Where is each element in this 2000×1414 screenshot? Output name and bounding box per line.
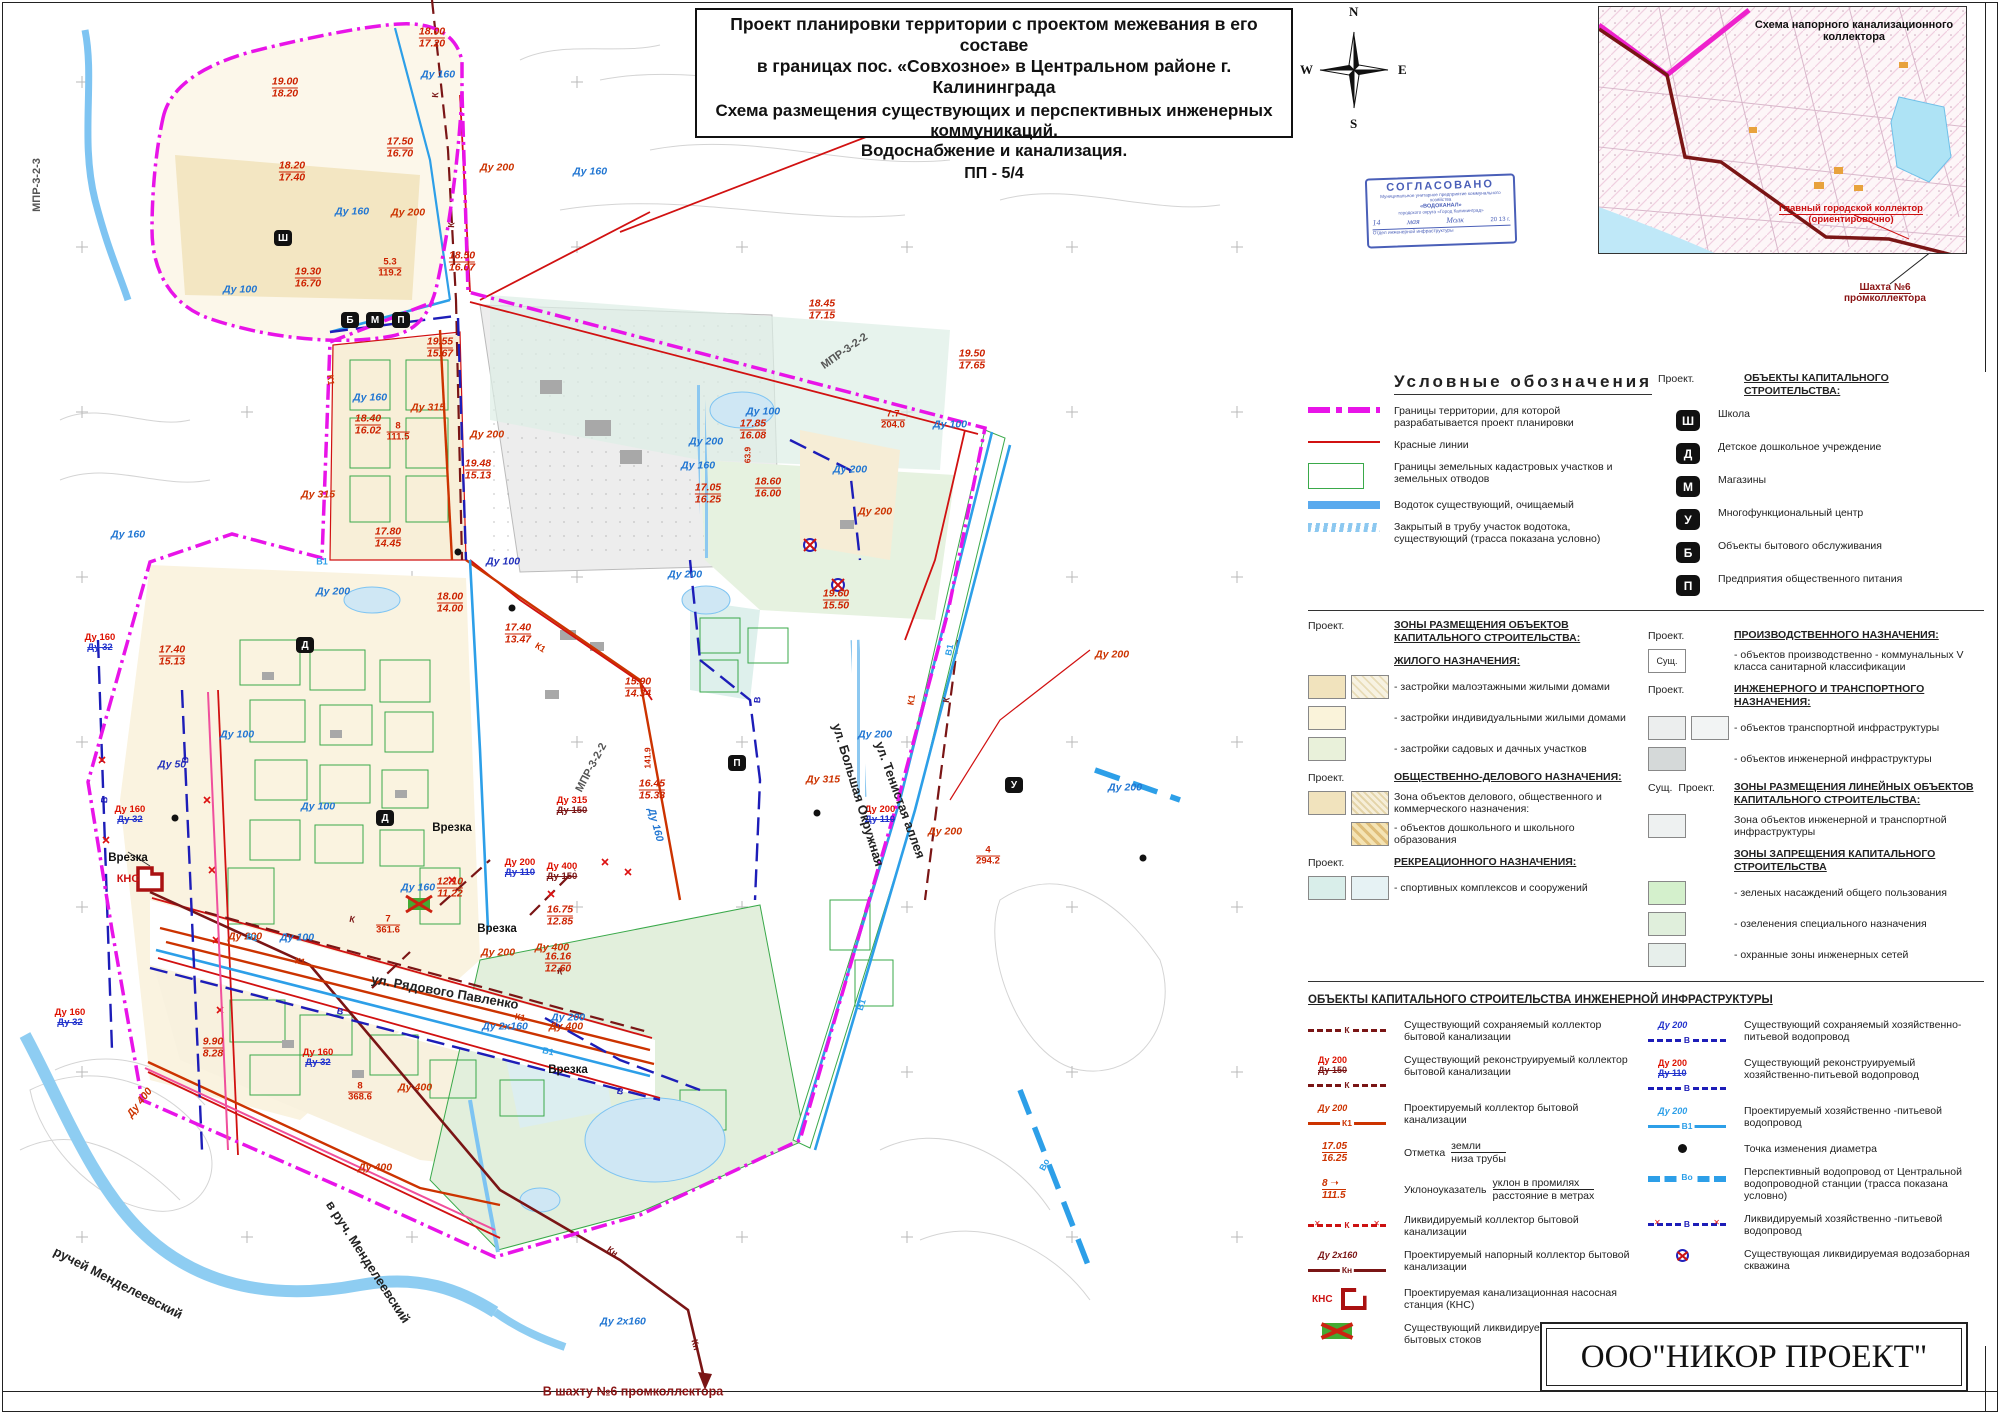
infra-item-label: Отметказемлиниза трубы: [1404, 1140, 1636, 1165]
legend-swatch: [1308, 439, 1394, 443]
legend-item-label: Школа: [1718, 408, 1968, 420]
zone-group-heading: ЖИЛОГО НАЗНАЧЕНИЯ:: [1308, 655, 1648, 668]
legend-item-label: Детское дошкольное учреждение: [1718, 441, 1968, 453]
infra-symbol: Ду 200Ду 150К: [1308, 1054, 1404, 1091]
zone-heading: ЗОНЫ ЗАПРЕЩЕНИЯ КАПИТАЛЬНОГО СТРОИТЕЛЬСТ…: [1734, 848, 1980, 874]
zone-swatches: [1308, 675, 1394, 699]
infra-item: Ду 200К1Проектируемый коллектор бытовой …: [1308, 1102, 1648, 1129]
zone-group-heading: ЗОНЫ ЗАПРЕЩЕНИЯ КАПИТАЛЬНОГО СТРОИТЕЛЬСТ…: [1648, 848, 1984, 874]
legend-swatch: [1308, 461, 1394, 489]
legend-item: УМногофункциональный центр: [1658, 507, 1984, 530]
infra-symbol: Ду 200Ду 110В: [1648, 1057, 1744, 1094]
infra-item: Ду 200В1Проектируемый хозяйственно -пить…: [1648, 1105, 1984, 1132]
infra-symbol: [1648, 1248, 1744, 1262]
infra-item-label: Существующий реконструируемый хозяйствен…: [1744, 1057, 1976, 1081]
infra-item-label: Проектируемый хозяйственно -питьевой вод…: [1744, 1105, 1976, 1129]
legend-item: ШШкола: [1658, 408, 1984, 431]
divider: [1308, 981, 1984, 982]
zone-item: - спортивных комплексов и сооружений: [1308, 876, 1648, 900]
legend-capital-objects-title: ОБЪЕКТЫ КАПИТАЛЬНОГО СТРОИТЕЛЬСТВА:: [1744, 372, 1984, 398]
zone-swatches: [1648, 716, 1734, 740]
infra-item: ✕✕КЛиквидируемый коллектор бытовой канал…: [1308, 1214, 1648, 1238]
stamp-day: 14: [1372, 218, 1380, 227]
compass-n: N: [1349, 4, 1358, 20]
zone-item-label: - охранные зоны инженерных сетей: [1734, 949, 1980, 961]
infra-item-label: Существующая ликвидируемая водозаборная …: [1744, 1248, 1976, 1272]
infra-symbol: 17.0516.25: [1308, 1140, 1404, 1166]
legend-item-label: Красные линии: [1394, 439, 1634, 451]
infra-symbol: Во: [1648, 1166, 1744, 1183]
infra-symbol: КНС: [1308, 1287, 1404, 1310]
zone-prefix: Проект.: [1648, 683, 1734, 696]
zone-swatches: [1648, 881, 1734, 905]
legend-item: Закрытый в трубу участок водотока, сущес…: [1308, 521, 1658, 545]
zones-title: ЗОНЫ РАЗМЕЩЕНИЯ ОБЪЕКТОВ КАПИТАЛЬНОГО СТ…: [1394, 619, 1640, 645]
zone-item: Сущ.- объектов производственно - коммуна…: [1648, 649, 1984, 673]
inset-title: Схема напорного канализационного коллект…: [1749, 19, 1959, 43]
zones-left-list: ЖИЛОГО НАЗНАЧЕНИЯ:- застройки малоэтажны…: [1308, 655, 1648, 900]
legend-item: Красные линии: [1308, 439, 1658, 451]
zone-heading: РЕКРЕАЦИОННОГО НАЗНАЧЕНИЯ:: [1394, 856, 1640, 869]
infra-symbol: [1648, 1143, 1744, 1153]
zone-item-label: Зона объектов инженерной и транспортной …: [1734, 814, 1980, 838]
zone-item: Зона объектов делового, общественного и …: [1308, 791, 1648, 815]
zone-swatches: [1308, 737, 1394, 761]
legend-swatch: У: [1658, 507, 1718, 530]
stamp-month: мая: [1407, 217, 1420, 226]
legend-item-label: Объекты бытового обслуживания: [1718, 540, 1968, 552]
zone-item-label: - застройки малоэтажными жилыми домами: [1394, 681, 1640, 693]
zone-group-heading: Проект.ОБЩЕСТВЕННО-ДЕЛОВОГО НАЗНАЧЕНИЯ:: [1308, 771, 1648, 784]
zone-swatch: [1308, 675, 1346, 699]
legend-item: ММагазины: [1658, 474, 1984, 497]
zone-swatch: [1648, 943, 1686, 967]
legend-general-list: Границы территории, для которой разрабат…: [1308, 405, 1658, 545]
plan-sheet: 18.0017.2019.0018.2018.2017.4017.5016.70…: [0, 0, 2000, 1414]
legend-swatch: [1308, 405, 1394, 413]
infra-item-label: Уклоноуказательуклон в промиляхрасстояни…: [1404, 1177, 1636, 1202]
legend-item: Водоток существующий, очищаемый: [1308, 499, 1658, 511]
infra-item-label: Ликвидируемый коллектор бытовой канализа…: [1404, 1214, 1636, 1238]
zones-right-list: Проект.ПРОИЗВОДСТВЕННОГО НАЗНАЧЕНИЯ:Сущ.…: [1648, 629, 1984, 967]
infra-right-list: Ду 200ВСуществующий сохраняемый хозяйств…: [1648, 1019, 1984, 1272]
zone-item-label: - спортивных комплексов и сооружений: [1394, 882, 1640, 894]
legend-swatch: Д: [1658, 441, 1718, 464]
legend-item: ДДетское дошкольное учреждение: [1658, 441, 1984, 464]
infra-item-label: Существующий сохраняемый хозяйственно-пи…: [1744, 1019, 1976, 1043]
infra-symbol: Ду 200К1: [1308, 1102, 1404, 1129]
zone-prefix: Проект.: [1648, 629, 1734, 642]
zone-item: - объектов дошкольного и школьного образ…: [1308, 822, 1648, 846]
zone-prefix: [1648, 848, 1734, 849]
services-icon: Б: [1676, 542, 1700, 563]
stamp-year: 20 13 г.: [1490, 217, 1510, 224]
zone-swatch: [1308, 876, 1346, 900]
zone-item: - застройки малоэтажными жилыми домами: [1308, 675, 1648, 699]
sush-box: Сущ.: [1648, 649, 1686, 673]
infra-symbol: ✕✕К: [1308, 1214, 1404, 1231]
zone-swatches: [1308, 791, 1394, 815]
zone-item: - охранные зоны инженерных сетей: [1648, 943, 1984, 967]
sump-symbol: [406, 896, 432, 912]
zones-proekt-label: Проект.: [1308, 619, 1394, 632]
infra-item: КНСПроектируемая канализационная насосна…: [1308, 1287, 1648, 1311]
school-icon: Ш: [1676, 410, 1700, 431]
zone-swatch: [1351, 876, 1389, 900]
zone-item: - озеленения специального назначения: [1648, 912, 1984, 936]
zone-item: - объектов инженерной инфраструктуры: [1648, 747, 1984, 771]
zone-item: - зеленых насаждений общего пользования: [1648, 881, 1984, 905]
zone-swatches: [1308, 876, 1394, 900]
zone-item-label: - объектов транспортной инфраструктуры: [1734, 722, 1980, 734]
legend-title: Условные обозначения: [1394, 372, 1652, 395]
legend-item-label: Многофункциональный центр: [1718, 507, 1968, 519]
infra-symbol: Ду 200В1: [1648, 1105, 1744, 1132]
zone-item-label: Зона объектов делового, общественного и …: [1394, 791, 1640, 815]
title-block: Проект планировки территории с проектом …: [695, 8, 1293, 138]
zone-item-label: - застройки садовых и дачных участков: [1394, 743, 1640, 755]
subtitle-line: коммуникаций.: [697, 121, 1291, 141]
shaft-label: Шахта №6 промколлектора: [1790, 282, 1980, 304]
infra-item: ✕✕ВЛиквидируемый хозяйственно -питьевой …: [1648, 1213, 1984, 1237]
inset-collector-label: Главный городской коллектор (ориентирово…: [1741, 203, 1961, 225]
zone-heading: ЖИЛОГО НАЗНАЧЕНИЯ:: [1394, 655, 1640, 668]
legend-item-label: Магазины: [1718, 474, 1968, 486]
shops-icon: М: [1676, 476, 1700, 497]
compass-s: S: [1350, 116, 1357, 132]
compass-rose: N W E S: [1298, 8, 1410, 130]
infra-symbol: Ду 200В: [1648, 1019, 1744, 1046]
infra-left-list: КСуществующий сохраняемый коллектор быто…: [1308, 1019, 1648, 1346]
infra-item-label: Точка изменения диаметра: [1744, 1143, 1976, 1155]
compass-star: [1298, 8, 1410, 130]
title-line: в границах пос. «Совхозное» в Центрально…: [697, 56, 1291, 98]
infra-item-label: Ликвидируемый хозяйственно -питьевой вод…: [1744, 1213, 1976, 1237]
infra-item: 8 ➝111.5Уклоноуказательуклон в промиляхр…: [1308, 1177, 1648, 1203]
zone-swatch: [1691, 716, 1729, 740]
legend-item-label: Предприятия общественного питания: [1718, 573, 1968, 585]
legend-item-label: Границы территории, для которой разрабат…: [1394, 405, 1634, 429]
multifunctional-center-icon: У: [1676, 509, 1700, 530]
zone-heading: ИНЖЕНЕРНОГО И ТРАНСПОРТНОГО НАЗНАЧЕНИЯ:: [1734, 683, 1980, 709]
infra-item: 17.0516.25Отметказемлиниза трубы: [1308, 1140, 1648, 1166]
legend-swatch: Ш: [1658, 408, 1718, 431]
infra-item: ВоПерспективный водопровод от Центрально…: [1648, 1166, 1984, 1202]
approval-stamp: СОГЛАСОВАНО Муниципальное унитарное пред…: [1365, 173, 1517, 248]
legend-swatch: [1308, 499, 1394, 509]
legend-proekt-label: Проект.: [1658, 372, 1744, 385]
zone-swatch: [1308, 737, 1346, 761]
infra-item: Точка изменения диаметра: [1648, 1143, 1984, 1155]
company-inner-border: [1546, 1328, 1962, 1386]
infra-item: Ду 200ВСуществующий сохраняемый хозяйств…: [1648, 1019, 1984, 1046]
legend-swatch: П: [1658, 573, 1718, 596]
legend-capital-objects-list: ШШколаДДетское дошкольное учреждениеММаг…: [1658, 408, 1984, 596]
infra-item-label: Проектируемый напорный коллектор бытовой…: [1404, 1249, 1636, 1273]
inset-map: Схема напорного канализационного коллект…: [1598, 6, 1967, 254]
stamp-signature: Молк: [1446, 215, 1464, 225]
infra-symbol: Ду 2х160Кн: [1308, 1249, 1404, 1276]
zone-swatches: [1648, 912, 1734, 936]
zone-item-label: - объектов дошкольного и школьного образ…: [1394, 822, 1640, 846]
compass-w: W: [1300, 62, 1313, 78]
company-block: ООО"НИКОР ПРОЕКТ": [1540, 1322, 1968, 1392]
catering-icon: П: [1676, 575, 1700, 596]
legend-swatch: [1308, 521, 1394, 532]
compass-e: E: [1398, 62, 1407, 78]
zone-group-heading: Проект.ИНЖЕНЕРНОГО И ТРАНСПОРТНОГО НАЗНА…: [1648, 683, 1984, 709]
legend-swatch: М: [1658, 474, 1718, 497]
infra-item-label: Существующий сохраняемый коллектор бытов…: [1404, 1019, 1636, 1043]
infra-title: ОБЪЕКТЫ КАПИТАЛЬНОГО СТРОИТЕЛЬСТВА ИНЖЕН…: [1308, 994, 1988, 1006]
zone-swatches: [1308, 706, 1394, 730]
infra-symbol: [1308, 1322, 1404, 1339]
zone-swatches: Сущ.: [1648, 649, 1734, 673]
zone-prefix: [1308, 655, 1394, 656]
zone-item-label: - зеленых насаждений общего пользования: [1734, 887, 1980, 899]
zone-group-heading: Сущ.Проект.ЗОНЫ РАЗМЕЩЕНИЯ ЛИНЕЙНЫХ ОБЪЕ…: [1648, 781, 1984, 807]
zone-item-label: - объектов производственно - коммунальны…: [1734, 649, 1980, 673]
legend-item-label: Водоток существующий, очищаемый: [1394, 499, 1634, 511]
zone-item: - застройки индивидуальными жилыми домам…: [1308, 706, 1648, 730]
zone-swatch: [1648, 747, 1686, 771]
zone-swatches: [1648, 814, 1734, 838]
zone-swatches: [1648, 943, 1734, 967]
zone-swatch: [1648, 716, 1686, 740]
infra-item-label: Существующий реконструируемый коллектор …: [1404, 1054, 1636, 1078]
zone-heading: ПРОИЗВОДСТВЕННОГО НАЗНАЧЕНИЯ:: [1734, 629, 1980, 642]
infra-item: Существующая ликвидируемая водозаборная …: [1648, 1248, 1984, 1272]
title-line: Проект планировки территории с проектом …: [697, 14, 1291, 56]
legend-item-label: Закрытый в трубу участок водотока, сущес…: [1394, 521, 1634, 545]
zone-item-label: - озеленения специального назначения: [1734, 918, 1980, 930]
infra-item-label: Проектируемый коллектор бытовой канализа…: [1404, 1102, 1636, 1126]
legend-item: Границы земельных кадастровых участков и…: [1308, 461, 1658, 489]
infra-item-label: Перспективный водопровод от Центральной …: [1744, 1166, 1976, 1202]
zone-swatch: [1648, 881, 1686, 905]
zone-swatch: [1648, 814, 1686, 838]
infra-item: Ду 200Ду 110ВСуществующий реконструируем…: [1648, 1057, 1984, 1094]
zone-item: Зона объектов инженерной и транспортной …: [1648, 814, 1984, 838]
sheet-number: ПП - 5/4: [697, 165, 1291, 183]
zone-swatch: [1648, 912, 1686, 936]
zone-item-label: - застройки индивидуальными жилыми домам…: [1394, 712, 1640, 724]
infra-item: Ду 200Ду 150КСуществующий реконструируем…: [1308, 1054, 1648, 1091]
zone-group-heading: Проект.РЕКРЕАЦИОННОГО НАЗНАЧЕНИЯ:: [1308, 856, 1648, 869]
legend-item: БОбъекты бытового обслуживания: [1658, 540, 1984, 563]
infra-symbol: К: [1308, 1019, 1404, 1036]
zone-swatch: [1308, 706, 1346, 730]
legend-item: Границы территории, для которой разрабат…: [1308, 405, 1658, 429]
infra-item: Ду 2х160КнПроектируемый напорный коллект…: [1308, 1249, 1648, 1276]
infra-item-label: Проектируемая канализационная насосная с…: [1404, 1287, 1636, 1311]
zone-group-heading: Проект.ПРОИЗВОДСТВЕННОГО НАЗНАЧЕНИЯ:: [1648, 629, 1984, 642]
zone-item-label: - объектов инженерной инфраструктуры: [1734, 753, 1980, 765]
zone-swatches: [1648, 747, 1734, 771]
legend-item-label: Границы земельных кадастровых участков и…: [1394, 461, 1634, 485]
subtitle-line: Водоснабжение и канализация.: [697, 141, 1291, 161]
legend-item: ППредприятия общественного питания: [1658, 573, 1984, 596]
zone-swatch: [1308, 791, 1346, 815]
legend-panel: Условные обозначения Границы территории,…: [1308, 372, 1988, 1346]
zone-prefix: Проект.: [1308, 771, 1394, 784]
zone-swatches: [1308, 822, 1394, 846]
subtitle-line: Схема размещения существующих и перспект…: [697, 101, 1291, 121]
kindergarten-icon: Д: [1676, 443, 1700, 464]
zone-heading: ЗОНЫ РАЗМЕЩЕНИЯ ЛИНЕЙНЫХ ОБЪЕКТОВ КАПИТА…: [1734, 781, 1980, 807]
zone-prefix: Проект.: [1308, 856, 1394, 869]
zone-swatch: [1351, 791, 1389, 815]
zone-swatch: [1351, 675, 1389, 699]
zone-swatch: [1351, 822, 1389, 846]
divider: [1308, 610, 1984, 611]
infra-symbol: ✕✕В: [1648, 1213, 1744, 1230]
infra-symbol: 8 ➝111.5: [1308, 1177, 1404, 1203]
legend-swatch: Б: [1658, 540, 1718, 563]
zone-heading: ОБЩЕСТВЕННО-ДЕЛОВОГО НАЗНАЧЕНИЯ:: [1394, 771, 1640, 784]
zone-item: - застройки садовых и дачных участков: [1308, 737, 1648, 761]
infra-item: КСуществующий сохраняемый коллектор быто…: [1308, 1019, 1648, 1043]
zone-prefix: Сущ.Проект.: [1648, 781, 1734, 794]
zone-item: - объектов транспортной инфраструктуры: [1648, 716, 1984, 740]
